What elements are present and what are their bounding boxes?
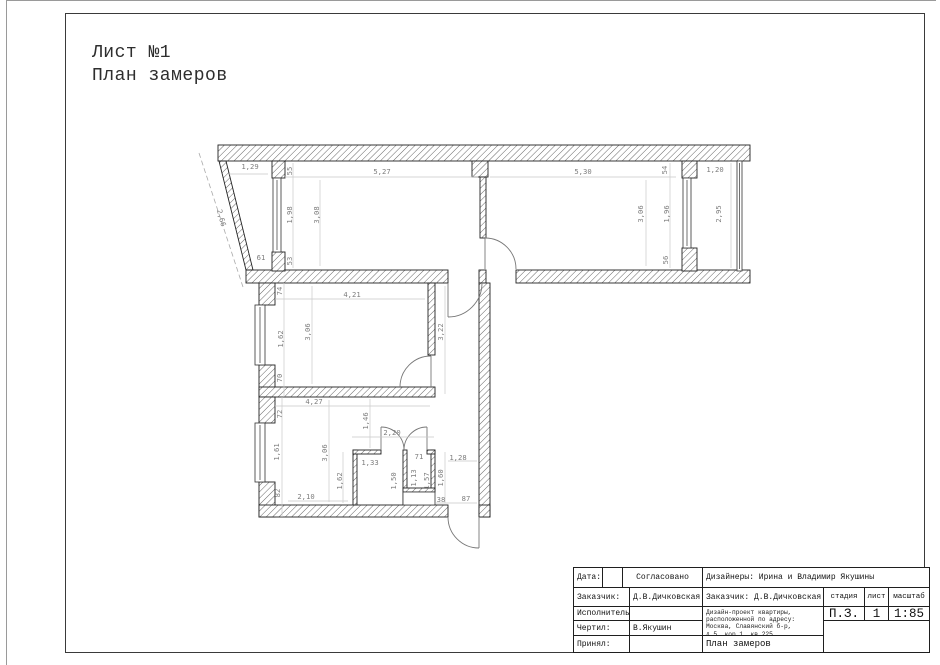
wall-segment — [272, 161, 285, 178]
value-sheet: 1 — [864, 606, 889, 621]
dimension-label: 2,20 — [383, 428, 400, 437]
field-client-label: Заказчик: — [573, 587, 630, 607]
dimension-label: 71 — [415, 452, 424, 461]
wall-segment — [682, 161, 697, 178]
floor-plan: 1,292,6661551,98535,273,085,303,06541,96… — [0, 0, 940, 665]
wall-segment — [682, 248, 697, 271]
field-client-value: Д.В.Дичковская — [629, 587, 703, 607]
wall-segment — [246, 270, 448, 283]
project-address-line: Москва, Славянский б-р, — [706, 623, 820, 630]
dimension-label: 1,57 — [422, 472, 431, 489]
dimension-label: 54 — [660, 166, 669, 175]
empty-cell — [823, 620, 930, 653]
wall-segment — [479, 505, 490, 517]
wall-segment — [353, 450, 381, 454]
dimension-label: 53 — [285, 257, 294, 266]
field-accepted-value — [629, 635, 703, 653]
dimension-label: 1,33 — [361, 458, 378, 467]
wall-segment — [479, 283, 490, 517]
field-project-address: Дизайн-проект квартиры, расположенной по… — [702, 606, 824, 636]
dimension-label: 1,62 — [335, 472, 344, 489]
wall-segment — [218, 145, 750, 161]
dimension-label: 82 — [273, 489, 282, 498]
value-scale: 1:85 — [888, 606, 930, 621]
field-doc-title: План замеров — [702, 635, 824, 653]
dimension-label: 3,06 — [320, 444, 329, 461]
door-arc — [448, 517, 479, 548]
dimension-label: 3,06 — [303, 323, 312, 340]
project-address-line: Дизайн-проект квартиры, — [706, 609, 820, 616]
header-stage: стадия — [823, 587, 865, 607]
dimension-label: 3,22 — [436, 323, 445, 340]
dimension-label: 5,27 — [373, 167, 390, 176]
dimension-label: 2,66 — [215, 208, 228, 227]
dimension-label: 55 — [285, 167, 294, 176]
wall-segment — [353, 450, 357, 505]
dimension-label: 1,62 — [276, 330, 285, 347]
door-arc — [448, 283, 482, 317]
header-sheet: лист — [864, 587, 889, 607]
dimension-label: 56 — [661, 256, 670, 265]
field-date-value — [602, 567, 623, 588]
door-arc — [400, 356, 431, 387]
dimension-label: 87 — [462, 494, 471, 503]
wall-segment — [431, 450, 435, 492]
value-stage: П.З. — [823, 606, 865, 621]
header-scale: масштаб — [888, 587, 930, 607]
project-address-line: расположенной по адресу: — [706, 616, 820, 623]
dimension-label: 38 — [437, 495, 446, 504]
dimension-label: 1,29 — [241, 162, 258, 171]
dimension-label: 1,50 — [389, 472, 398, 489]
wall-segment — [259, 283, 275, 305]
wall-segment — [259, 397, 275, 423]
dimension-label: 72 — [275, 410, 284, 419]
field-designers: Дизайнеры: Ирина и Владимир Якушины — [702, 567, 930, 588]
wall-segment — [259, 505, 448, 517]
dimension-label: 5,30 — [574, 167, 591, 176]
title-block: Дата: Согласовано Заказчик: Д.В.Дичковск… — [573, 567, 930, 653]
drawing-sheet: Лист №1План замеров 1,292,6661551,98535,… — [0, 0, 940, 665]
wall-segment — [516, 270, 750, 283]
dimension-label: 4,21 — [343, 290, 360, 299]
dimension-label: 74 — [275, 287, 284, 296]
wall-segment — [480, 177, 486, 238]
dimension-label: 1,98 — [285, 206, 294, 223]
wall-segment — [428, 283, 435, 355]
field-accepted-label: Принял: — [573, 635, 630, 653]
field-executor-label: Исполнитель: — [573, 606, 630, 621]
duct-box — [403, 492, 435, 505]
dimension-label: 4,27 — [305, 397, 322, 406]
wall-segment — [472, 161, 488, 177]
dimension-label: 3,06 — [636, 205, 645, 222]
dimension-label: 61 — [257, 253, 266, 262]
dimension-label: 1,60 — [436, 469, 445, 486]
wall-segment — [427, 450, 435, 454]
dimension-label: 1,28 — [449, 453, 466, 462]
field-executor-value — [629, 606, 703, 621]
dimension-label: 1,46 — [361, 412, 370, 429]
field-drawn-label: Чертил: — [573, 620, 630, 636]
dimension-label: 1,96 — [662, 205, 671, 222]
wall-segment — [479, 270, 486, 283]
wall-segment — [259, 387, 435, 397]
dimension-label: 3,08 — [312, 206, 321, 223]
field-approved: Согласовано — [622, 567, 703, 588]
field-date-label: Дата: — [573, 567, 603, 588]
field-client2: Заказчик: Д.В.Дичковская — [702, 587, 824, 607]
dimension-label: 70 — [275, 374, 284, 383]
wall-segment — [272, 252, 285, 271]
door-arc — [485, 238, 516, 269]
dimension-label: 1,20 — [706, 165, 723, 174]
dimension-label: 2,95 — [714, 205, 723, 222]
dimension-label: 2,10 — [297, 492, 314, 501]
field-drawn-value: В.Якушин — [629, 620, 703, 636]
dimension-label: 1,13 — [409, 469, 418, 486]
dimension-label: 1,61 — [272, 443, 281, 460]
door-arc — [404, 427, 427, 450]
